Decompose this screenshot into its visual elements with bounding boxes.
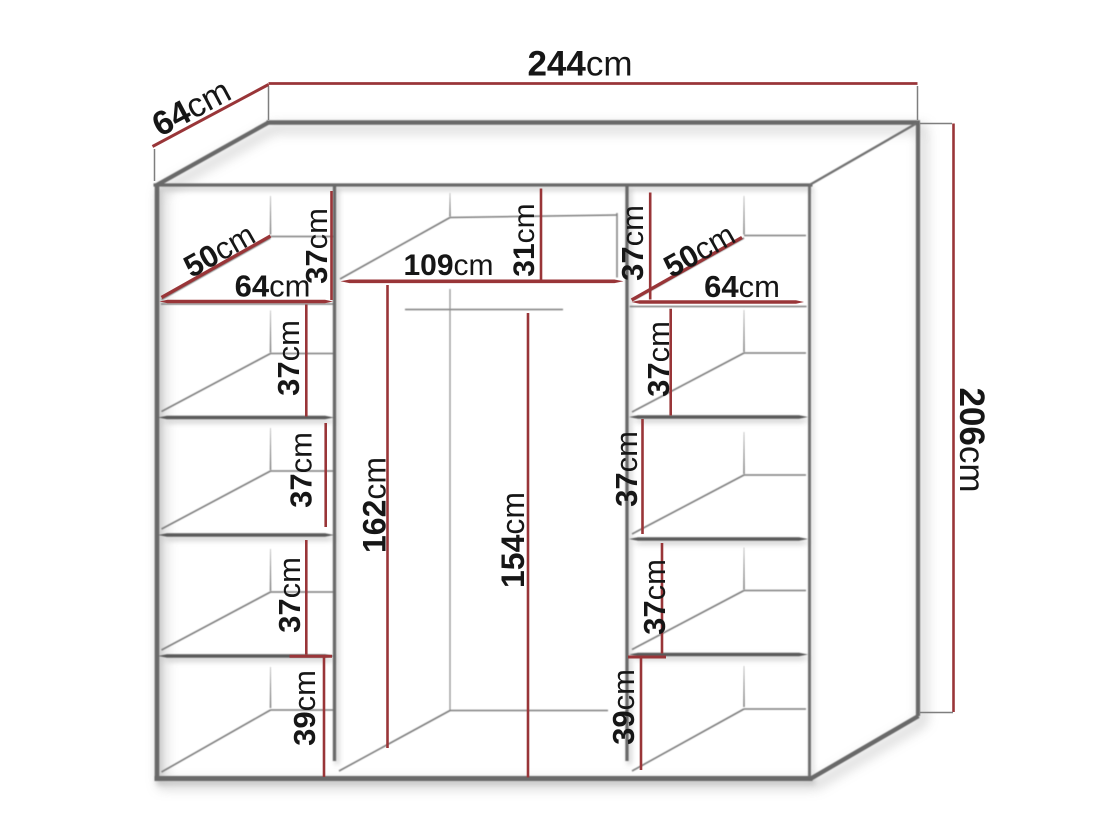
svg-text:39cm: 39cm — [287, 670, 322, 746]
svg-text:31cm: 31cm — [508, 203, 541, 276]
svg-text:37cm: 37cm — [299, 208, 334, 284]
svg-text:109cm: 109cm — [403, 249, 493, 282]
svg-text:244cm: 244cm — [527, 45, 632, 84]
svg-text:37cm: 37cm — [284, 432, 319, 508]
svg-text:37cm: 37cm — [271, 320, 306, 396]
svg-text:37cm: 37cm — [272, 557, 307, 633]
svg-text:64cm: 64cm — [704, 269, 780, 304]
svg-text:37cm: 37cm — [637, 559, 672, 635]
svg-text:37cm: 37cm — [615, 205, 650, 281]
svg-text:37cm: 37cm — [641, 321, 676, 397]
svg-text:37cm: 37cm — [609, 431, 644, 507]
svg-text:39cm: 39cm — [606, 669, 641, 745]
svg-text:154cm: 154cm — [495, 492, 531, 588]
svg-text:162cm: 162cm — [357, 457, 393, 553]
svg-text:206cm: 206cm — [952, 387, 991, 492]
